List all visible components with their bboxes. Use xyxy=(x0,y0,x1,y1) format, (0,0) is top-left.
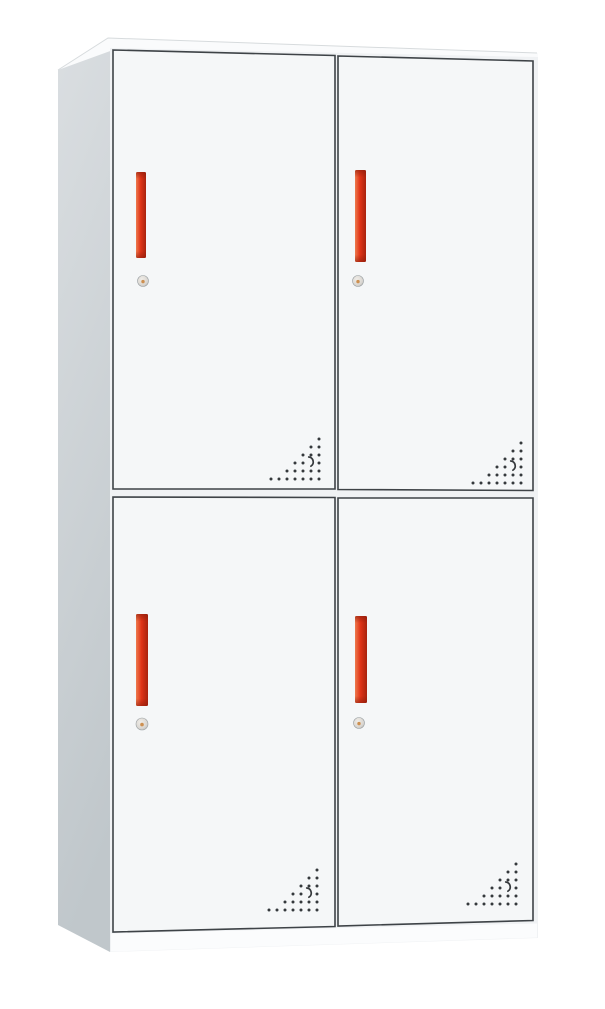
vent-dot xyxy=(515,887,518,890)
vent-dot xyxy=(278,478,281,481)
vent-dot xyxy=(318,462,321,465)
vent-dot xyxy=(491,895,494,898)
vent-dot xyxy=(499,887,502,890)
vent-dot xyxy=(308,909,311,912)
vent-dot xyxy=(302,478,305,481)
vent-dot xyxy=(507,895,510,898)
vent-dot xyxy=(292,893,295,896)
vent-dot xyxy=(504,466,507,469)
vent-dot xyxy=(318,438,321,441)
vent-dot xyxy=(286,478,289,481)
vent-dot xyxy=(302,462,305,465)
vent-dot xyxy=(512,474,515,477)
cabinet-side-panel xyxy=(58,40,110,952)
cam-lock-bottom-right xyxy=(354,718,365,729)
vent-dot xyxy=(308,901,311,904)
vent-dot xyxy=(499,895,502,898)
vent-dot xyxy=(504,474,507,477)
vent-dot xyxy=(515,903,518,906)
vent-dot xyxy=(294,478,297,481)
lock-keyhole-icon xyxy=(357,722,360,725)
vent-dot xyxy=(268,909,271,912)
vent-dot xyxy=(467,903,470,906)
vent-dot xyxy=(520,474,523,477)
locker-product-photo xyxy=(0,0,605,1009)
vent-dot xyxy=(488,482,491,485)
vent-dot xyxy=(300,901,303,904)
vent-dot xyxy=(483,903,486,906)
vent-dot xyxy=(276,909,279,912)
vent-dot xyxy=(310,454,313,457)
vent-dot xyxy=(515,895,518,898)
vent-dot xyxy=(286,470,289,473)
vent-dot xyxy=(520,482,523,485)
cam-lock-top-left xyxy=(138,276,149,287)
vent-dot xyxy=(499,879,502,882)
vent-dot xyxy=(270,478,273,481)
vent-dot xyxy=(491,903,494,906)
vent-dot xyxy=(512,450,515,453)
vent-dot xyxy=(515,863,518,866)
vent-dot xyxy=(316,901,319,904)
vent-dot xyxy=(300,909,303,912)
lock-keyhole-icon xyxy=(356,280,359,283)
vent-dot xyxy=(284,909,287,912)
vent-dot xyxy=(284,901,287,904)
vent-dot xyxy=(496,474,499,477)
vent-dot xyxy=(520,466,523,469)
vent-dot xyxy=(507,871,510,874)
vent-dot xyxy=(292,909,295,912)
door-handle-top-right xyxy=(355,170,366,262)
vent-dot xyxy=(507,903,510,906)
door-handle-bottom-right xyxy=(355,616,367,703)
handle-bar-shading xyxy=(136,172,146,258)
vent-dot xyxy=(504,482,507,485)
door-handle-top-left xyxy=(136,172,146,258)
vent-dot xyxy=(504,458,507,461)
lock-keyhole-icon xyxy=(141,280,144,283)
vent-dot xyxy=(294,462,297,465)
vent-dot xyxy=(302,454,305,457)
vent-dot xyxy=(292,901,295,904)
handle-bar-shading xyxy=(136,614,148,706)
vent-dot xyxy=(308,877,311,880)
vent-dot xyxy=(472,482,475,485)
vent-dot xyxy=(512,458,515,461)
vent-dot xyxy=(316,877,319,880)
vent-dot xyxy=(475,903,478,906)
vent-dot xyxy=(515,879,518,882)
vent-dot xyxy=(507,879,510,882)
vent-dot xyxy=(318,446,321,449)
vent-dot xyxy=(480,482,483,485)
door-bottom-right xyxy=(338,498,533,926)
vent-dot xyxy=(496,466,499,469)
door-handle-bottom-left xyxy=(136,614,148,706)
door-top-right xyxy=(338,56,533,491)
vent-dot xyxy=(488,474,491,477)
vent-dot xyxy=(300,885,303,888)
cam-lock-bottom-left xyxy=(136,718,148,730)
vent-dot xyxy=(318,454,321,457)
door-bottom-left xyxy=(113,497,335,932)
lock-keyhole-icon xyxy=(140,723,144,727)
vent-dot xyxy=(316,885,319,888)
cam-lock-top-right xyxy=(353,276,364,287)
vent-dot xyxy=(491,887,494,890)
vent-dot xyxy=(515,871,518,874)
vent-dot xyxy=(512,482,515,485)
vent-dot xyxy=(310,470,313,473)
vent-dot xyxy=(302,470,305,473)
vent-dot xyxy=(310,478,313,481)
vent-dot xyxy=(318,470,321,473)
vent-dot xyxy=(496,482,499,485)
vent-dot xyxy=(316,893,319,896)
vent-dot xyxy=(499,903,502,906)
vent-dot xyxy=(483,895,486,898)
vent-dot xyxy=(310,446,313,449)
vent-dot xyxy=(300,893,303,896)
door-top-left xyxy=(113,50,335,489)
vent-dot xyxy=(520,450,523,453)
vent-dot xyxy=(294,470,297,473)
vent-dot xyxy=(308,885,311,888)
handle-bar-shading xyxy=(355,616,367,703)
vent-dot xyxy=(520,458,523,461)
vent-dot xyxy=(316,869,319,872)
vent-dot xyxy=(520,442,523,445)
locker-cabinet-drawing xyxy=(0,0,605,1009)
vent-dot xyxy=(316,909,319,912)
vent-dot xyxy=(318,478,321,481)
handle-bar-shading xyxy=(355,170,366,262)
